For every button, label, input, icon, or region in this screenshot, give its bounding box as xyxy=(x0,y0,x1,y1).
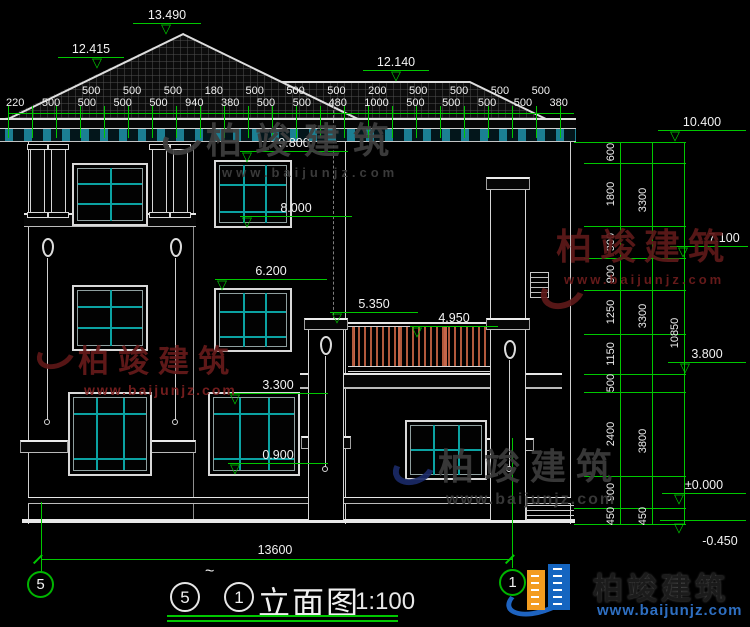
triangle-down-icon: ▽ xyxy=(674,492,684,506)
right-roof-ridge xyxy=(281,81,470,83)
elevation-marker: 12.140 ▽ xyxy=(363,55,429,71)
top-dim-upper-row: 500500500180500500500200500500500500 xyxy=(82,86,550,97)
dim-value: 180 xyxy=(205,86,223,97)
column xyxy=(30,148,45,214)
dim-value: 500 xyxy=(149,98,167,109)
right-total-chain-line xyxy=(684,142,685,524)
elevation-marker: 3.800 ▽ xyxy=(668,347,746,363)
dim-label: 3300 xyxy=(637,178,649,222)
dim-value: 500 xyxy=(491,86,509,97)
elevation-drawing: 500500500180500500500200500500500500 220… xyxy=(0,0,750,627)
title-grid-circle-1: 1 xyxy=(224,582,254,612)
lamp-ornament xyxy=(42,238,54,257)
elevation-marker: 3.300 ▽ xyxy=(228,378,328,394)
title-tilde: ~ xyxy=(205,563,214,581)
elevation-marker: 4.950 ▽ xyxy=(410,311,498,327)
dim-value: 500 xyxy=(286,86,304,97)
dim-value: 380 xyxy=(221,98,239,109)
watermark-top: 柏竣建筑 www.baijunjz.com xyxy=(162,112,402,180)
triangle-down-icon: ▽ xyxy=(412,325,422,339)
dim-value: 500 xyxy=(82,86,100,97)
dim-value: 500 xyxy=(450,86,468,97)
dim-value: 500 xyxy=(78,98,96,109)
dim-value: 500 xyxy=(293,98,311,109)
brand-logo: 柏竣建筑 www.baijunjz.com xyxy=(505,562,750,622)
dim-label: 3300 xyxy=(637,294,649,338)
dim-value: 940 xyxy=(185,98,203,109)
triangle-down-icon: ▽ xyxy=(332,311,342,325)
column xyxy=(51,148,66,214)
title-grid-circle-5: 5 xyxy=(170,582,200,612)
dim-value: 1000 xyxy=(364,98,388,109)
triangle-down-icon: ▽ xyxy=(217,278,227,292)
wall-center-corner xyxy=(345,142,346,524)
elevation-marker: ±0.000 ▽ xyxy=(662,478,746,494)
dim-value: 500 xyxy=(514,98,532,109)
balcony-bottom-rail xyxy=(348,366,494,372)
lamp-dot xyxy=(322,466,328,472)
grid-line-5-stub xyxy=(41,502,42,572)
dim-value: 500 xyxy=(113,98,131,109)
lamp-dot xyxy=(44,419,50,425)
triangle-down-icon: ▽ xyxy=(230,462,240,476)
triangle-down-icon: ▽ xyxy=(242,215,252,229)
steps-line3 xyxy=(526,515,574,516)
bottom-dim-label: 13600 xyxy=(235,543,315,557)
dim-value: 500 xyxy=(406,98,424,109)
elevation-marker: 13.490 ▽ xyxy=(133,8,201,24)
elevation-marker: 10.400 ▽ xyxy=(658,115,746,131)
top-dim-lower-row: 2205005005005009403805005004801000500500… xyxy=(6,98,568,109)
bottom-dim-line xyxy=(41,559,512,560)
wall-bay-divider xyxy=(193,146,194,520)
dim-label: 3800 xyxy=(637,419,649,463)
dim-value: 220 xyxy=(6,98,24,109)
title-underline-2 xyxy=(167,620,398,622)
ext-line xyxy=(584,163,686,164)
dim-value: 500 xyxy=(327,86,345,97)
ext-line xyxy=(584,290,686,291)
dim-value: 500 xyxy=(246,86,264,97)
triangle-down-icon: ▽ xyxy=(161,22,171,36)
dim-value: 500 xyxy=(257,98,275,109)
pilaster-capital xyxy=(20,440,68,453)
dim-value: 480 xyxy=(328,98,346,109)
dim-value: 200 xyxy=(368,86,386,97)
triangle-down-icon: ▽ xyxy=(92,56,102,70)
terrace-column xyxy=(490,190,526,318)
dim-label: 450 xyxy=(637,494,649,538)
dim-value: 500 xyxy=(123,86,141,97)
dim-label: 1800 xyxy=(605,172,617,216)
dim-label: 600 xyxy=(605,130,617,174)
window xyxy=(72,163,148,226)
dim-value: 380 xyxy=(550,98,568,109)
lamp-dot xyxy=(172,419,178,425)
window xyxy=(68,392,152,476)
triangle-down-icon: ▽ xyxy=(674,521,684,535)
triangle-down-icon: ▽ xyxy=(680,361,690,375)
balcony-post-left xyxy=(308,330,344,520)
wall-left-edge xyxy=(28,142,29,524)
elevation-marker: 12.415 ▽ xyxy=(58,42,124,58)
brand-url: www.baijunjz.com xyxy=(597,602,742,619)
lamp-ornament xyxy=(170,238,182,257)
triangle-down-icon: ▽ xyxy=(391,69,401,83)
elevation-marker: 0.900 ▽ xyxy=(228,448,328,464)
watermark-center: 柏竣建筑 www.baijunjz.com xyxy=(392,438,622,509)
dim-value: 500 xyxy=(164,86,182,97)
dim-value: 500 xyxy=(409,86,427,97)
drawing-title: 立面图 xyxy=(258,578,360,624)
ext-line xyxy=(584,392,686,393)
watermark-right: 柏竣建筑 www.baijunjz.com xyxy=(556,218,732,287)
post-capital xyxy=(486,177,530,190)
grid-bubble-5: 5 xyxy=(27,571,54,598)
steps-line2 xyxy=(526,510,574,511)
triangle-down-icon: ▽ xyxy=(670,129,680,143)
ext-line xyxy=(584,374,686,375)
dim-value: 500 xyxy=(478,98,496,109)
dim-label: 1250 xyxy=(605,290,617,334)
dim-value: 500 xyxy=(442,98,460,109)
elevation-marker: 6.200 ▽ xyxy=(215,264,327,280)
watermark-left: 柏竣建筑 www.baijunjz.com xyxy=(36,336,238,398)
dim-value: 500 xyxy=(532,86,550,97)
drawing-scale: 1:100 xyxy=(355,588,415,616)
logo-tower-orange xyxy=(527,570,545,610)
logo-building-icon xyxy=(505,562,589,620)
elevation-marker: 8.000 ▽ xyxy=(240,201,352,217)
dim-label: 500 xyxy=(605,361,617,405)
title-underline xyxy=(167,615,398,617)
logo-tower-blue xyxy=(548,564,570,610)
right-floor-chain-line xyxy=(652,142,653,524)
dim-value: 500 xyxy=(42,98,60,109)
elevation-marker: 5.350 ▽ xyxy=(330,297,418,313)
elevation-marker: ▽ -0.450 xyxy=(660,520,746,548)
